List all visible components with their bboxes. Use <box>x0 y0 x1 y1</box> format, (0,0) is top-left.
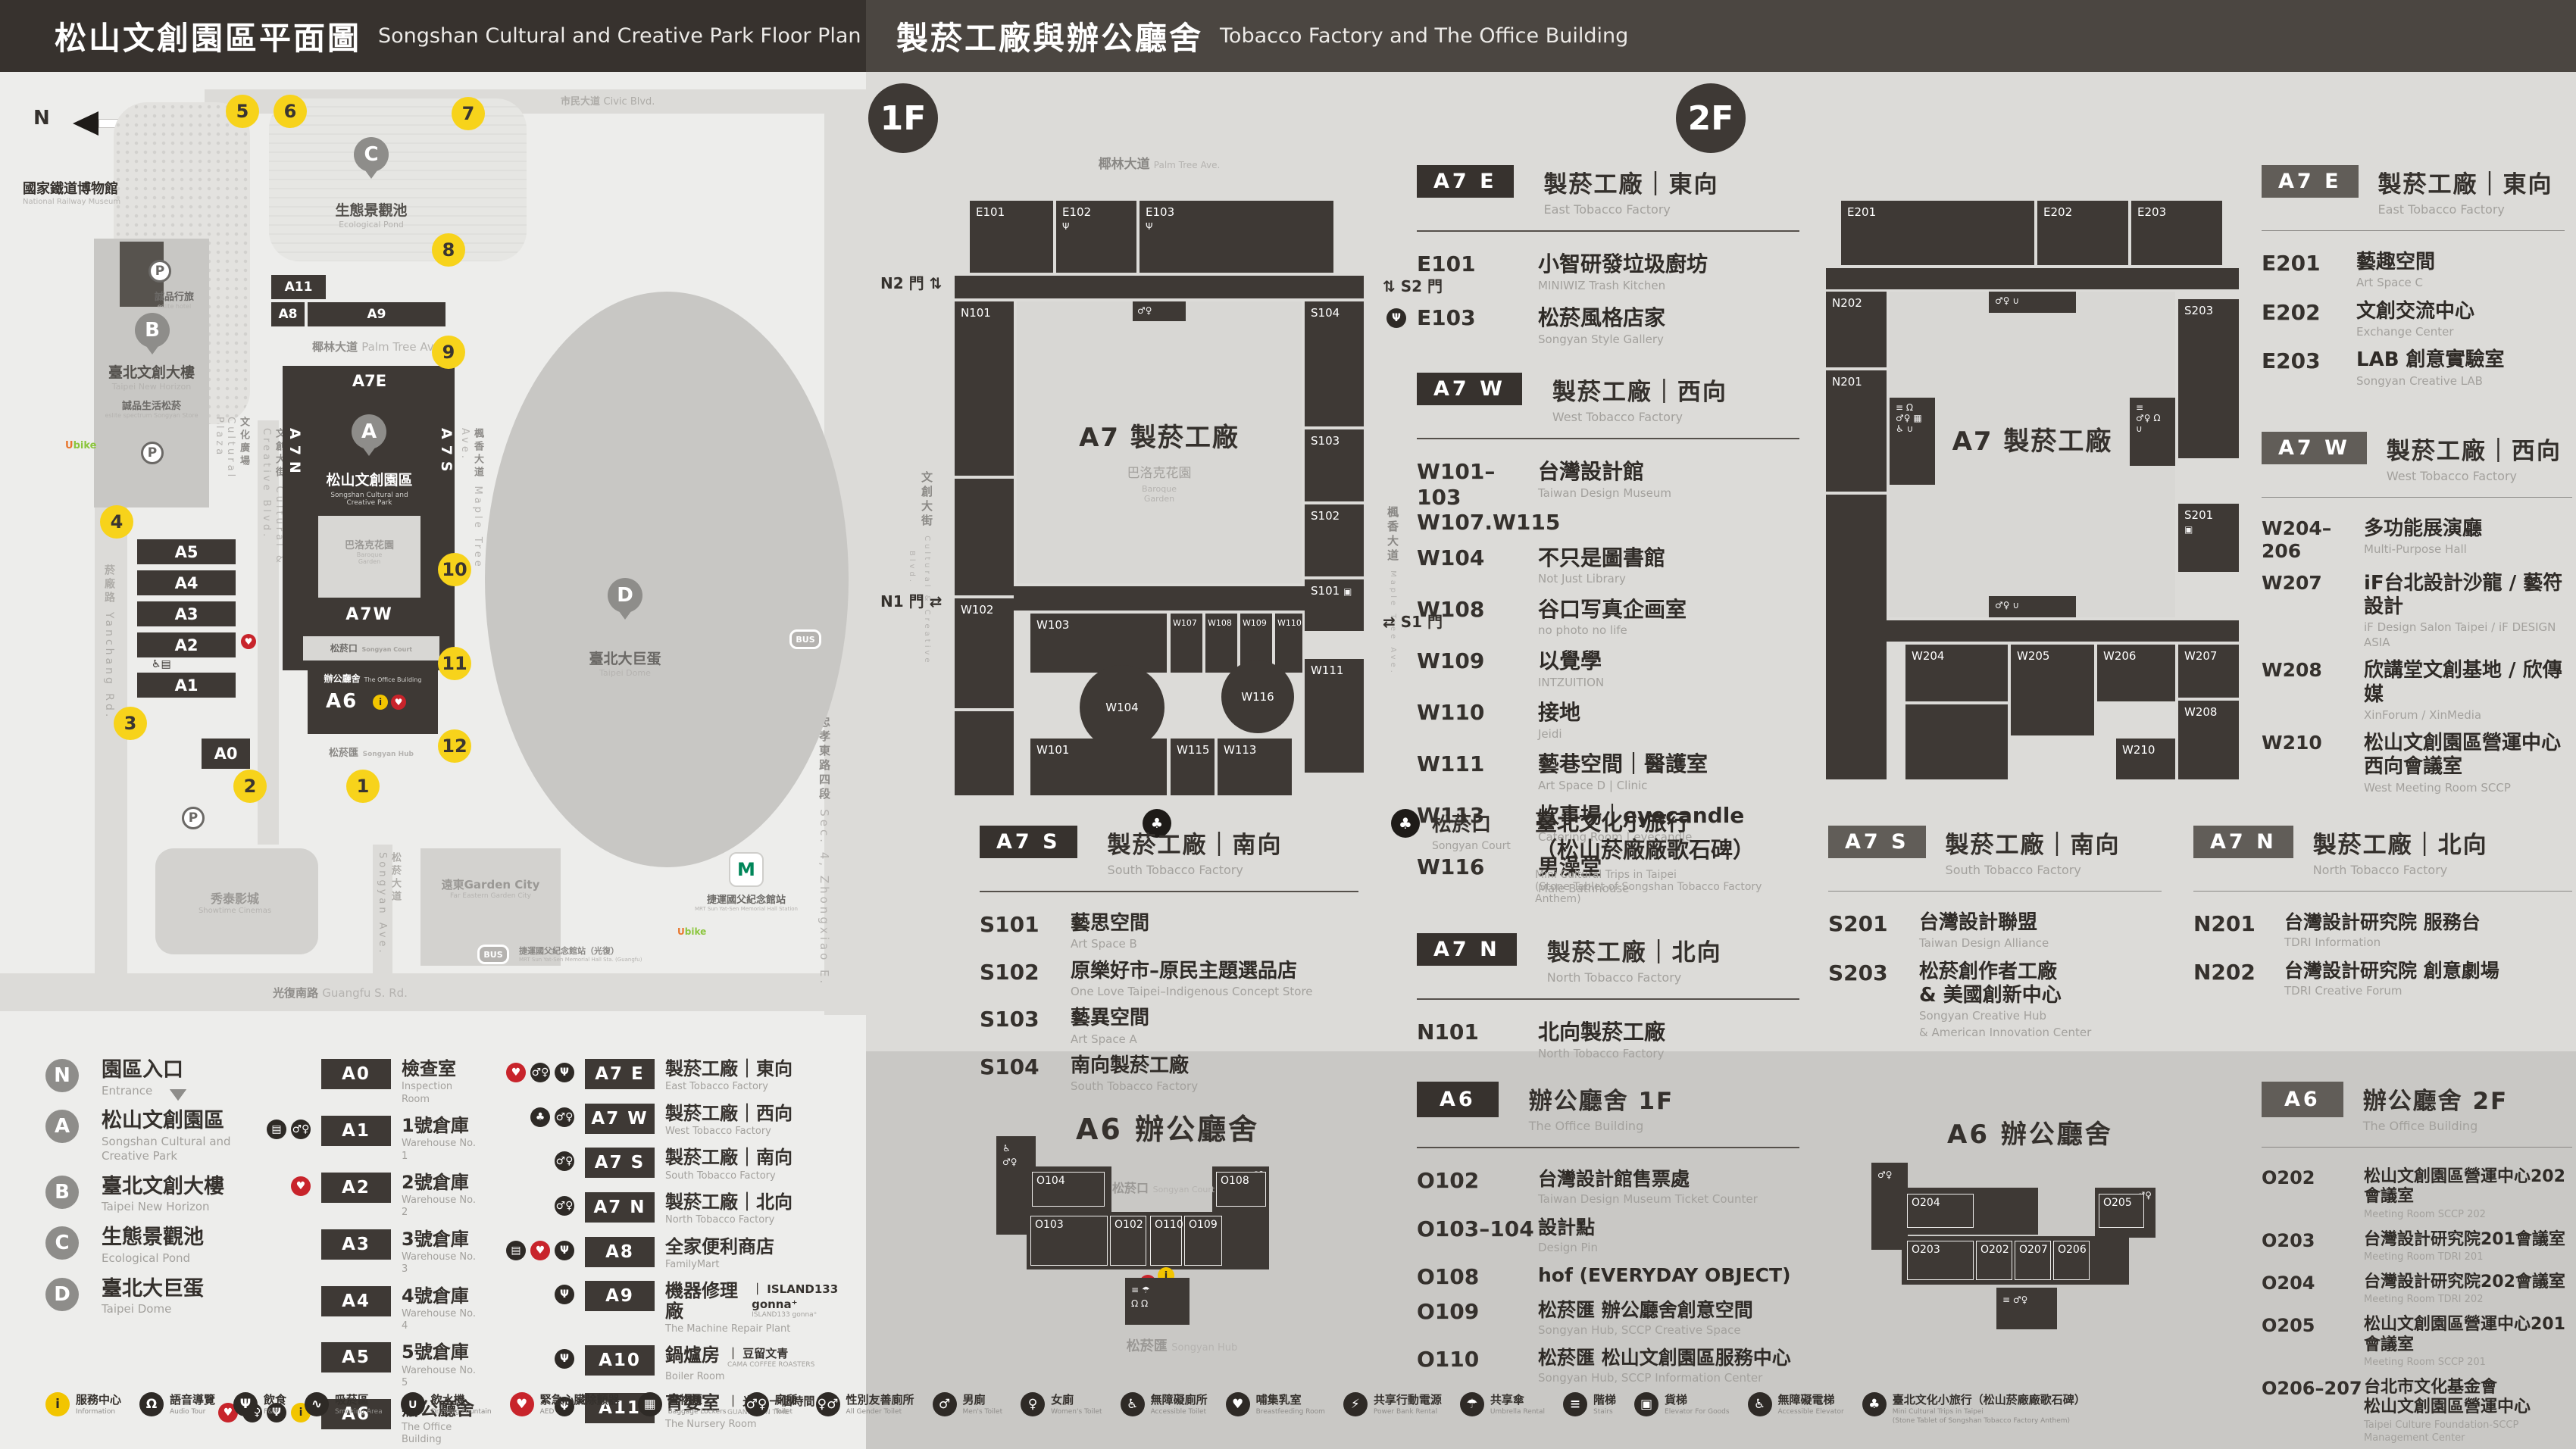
section-a6-1f: A6 辦公廳舍 1FThe Office Building O102 台灣設計館… <box>1417 1082 1799 1395</box>
fountain-icon: ∪ <box>401 1392 425 1416</box>
room-label: O102 <box>1110 1216 1146 1266</box>
map-a7s: A7S <box>438 428 455 478</box>
gate-n2: N2 門 ⇅ <box>880 271 942 293</box>
fnb-icon: Ψ <box>555 1241 574 1260</box>
legend-warehouses: A0 檢查室 Inspection Room ▤♂♀ A1 1號倉庫 Wareh… <box>227 1059 477 1446</box>
divider <box>1417 998 1799 1000</box>
eslite-hotel-label: 誠品行旅 eslite hotel <box>129 289 220 310</box>
directory-entry: O206–207 台北市文化基金會松山文創園區營運中心Taipei Cultur… <box>2262 1378 2572 1445</box>
room-label: W206 <box>2097 645 2175 701</box>
locker-icon: ▦ <box>638 1392 662 1416</box>
facility-item: Ψ 飲食 F&B <box>233 1392 286 1416</box>
toilet-icon: ♂♀ <box>530 1063 550 1082</box>
directory-entry: W108 谷口写真企画室no photo no life <box>1417 597 1799 639</box>
toilet-cluster: ♂♀ ∪ <box>1989 596 2076 617</box>
divider <box>1417 438 1799 439</box>
park-name-label: 松山文創園區 Songshan Cultural and Creative Pa… <box>299 469 439 507</box>
ubike-logo: Ubike <box>677 926 706 937</box>
facility-item: ♿ 無障礙廁所 Accessible Toilet <box>1121 1392 1208 1416</box>
section-a6-2f: A6 辦公廳舍 2FThe Office Building O202 松山文創園… <box>2262 1082 2572 1449</box>
section-chip: A7 N <box>1417 933 1517 966</box>
new-horizon-label: 臺北文創大樓 Taipei New Horizon <box>83 361 220 392</box>
legend-building-row: ♂♀ A7 S 製菸工廠｜南向 South Tobacco Factory <box>491 1148 870 1182</box>
eslite-spectrum-label: 誠品生活松菸 eslite spectrum Songyan Store <box>83 398 220 419</box>
room-label: N202 <box>1826 292 1887 367</box>
songyan-court-map-label: 松菸口 Songyan Court <box>303 640 439 654</box>
legend-building-row: A5 5號倉庫 Warehouse No. 5 <box>227 1342 477 1389</box>
directory-entry: O205 松山文創園區營運中心201會議室Meeting Room SCCP 2… <box>2262 1315 2572 1369</box>
mens-icon: ♂ <box>933 1392 957 1416</box>
stem: ≡ ☂Ω Ω <box>1125 1278 1190 1325</box>
entrance-5: 5 <box>226 95 259 128</box>
palm-ave-label: 椰林大道 Palm Tree Ave. <box>312 339 445 354</box>
court-label: 松菸口 Songyan Court <box>1112 1178 1211 1196</box>
legend-building-row: Ψ A9 機器修理廠 ｜ ISLAND133 gonna⁺ ISLAND133 … <box>491 1281 870 1335</box>
power-icon: ⚡ <box>1343 1392 1368 1416</box>
entrance-2: 2 <box>233 770 267 803</box>
stairs-icon: ≡ <box>1563 1392 1587 1416</box>
legend-building-code: A5 <box>321 1342 391 1372</box>
room-label: S103 <box>1305 429 1364 501</box>
directory-entry: E201 藝趣空間Art Space C <box>2262 251 2565 291</box>
compass-north-arrow <box>61 111 98 136</box>
factory-title-en: Tobacco Factory and The Office Building <box>1220 24 1628 48</box>
wall <box>1826 495 1887 779</box>
room-label: N101 <box>955 301 1014 476</box>
legend-building-code: A2 <box>321 1173 391 1203</box>
entrance-4: 4 <box>100 505 133 539</box>
map-a3: A3 <box>137 601 236 626</box>
facility-item: ♀♂ 性別友善廁所 All Gender Toilet <box>816 1392 914 1416</box>
legend-building-code: A4 <box>321 1286 391 1316</box>
room-label: W108 <box>1205 614 1237 673</box>
facility-item: ♿ 無障礙電梯 Accessible Elevator <box>1748 1392 1844 1416</box>
aed-icon: ♥ <box>291 1176 311 1196</box>
entrance-6: 6 <box>274 95 307 128</box>
a6-plan-1f: A6 辦公廳舍 ♿♂♀ ♂♀ O104 松菸口 Songyan Court O1… <box>985 1102 1379 1360</box>
facility-item: ⚡ 共享行動電源 Power Bank Rental <box>1343 1392 1442 1416</box>
room-label: W101 <box>1030 739 1167 795</box>
directory-entry: S104 南向製菸工廠South Tobacco Factory <box>980 1054 1358 1095</box>
map-a8: A8 <box>271 302 305 326</box>
ecological-pond <box>269 98 527 261</box>
factory-header: 製菸工廠與辦公廳舍 Tobacco Factory and The Office… <box>866 0 2576 72</box>
facility-item: i 服務中心 Information <box>45 1392 121 1416</box>
floor2-badge: 2F <box>1676 83 1746 153</box>
facility-item: ▣ 貨梯 Elevator For Goods <box>1634 1392 1729 1416</box>
room-label: W104 <box>1080 665 1165 750</box>
room-label: O108 <box>1216 1172 1266 1207</box>
dome-label: 臺北大巨蛋 Taipei Dome <box>557 648 693 678</box>
fnb-icon: Ψ <box>1386 308 1406 328</box>
directory-entry: S101 藝思空間Art Space B <box>980 912 1358 952</box>
womens-icon: ♀ <box>1021 1392 1045 1416</box>
directory-entry: O109 松菸匯 辦公廳舍創意空間Songyan Hub, SCCP Creat… <box>1417 1299 1799 1338</box>
aed-icon: ♥ <box>506 1063 526 1082</box>
legend-building-row: ▤♥Ψ A8 全家便利商店 FamilyMart <box>491 1237 870 1272</box>
directory-entry: O108 hof (EVERYDAY OBJECT) <box>1417 1264 1799 1290</box>
compass-label: N <box>33 107 50 130</box>
legend-building-code: A0 <box>321 1059 391 1089</box>
legend-building-code: A7 E <box>585 1059 655 1089</box>
room-label: W205 <box>2011 645 2094 735</box>
stem: ≡ ♂♀ <box>1996 1288 2057 1329</box>
room-label: W208 <box>2178 701 2239 779</box>
songyan-hub-map-label: 松菸匯 Songyan Hub <box>303 745 439 759</box>
legend-building-code: A3 <box>321 1229 391 1260</box>
room-label: W111 <box>1305 659 1364 773</box>
section-chip: A7 S <box>980 826 1077 858</box>
legend-building-code: A7 N <box>585 1192 655 1223</box>
section-a7n-2f: A7 N 製菸工廠｜北向North Tobacco Factory N201 台… <box>2193 826 2572 1007</box>
trip-icon: ♣ <box>1862 1392 1887 1416</box>
room-label: O104 <box>1032 1172 1105 1207</box>
legend-building-code: A7 W <box>585 1104 655 1134</box>
directory-entry: W104 不只是圖書館Not Just Library <box>1417 545 1799 587</box>
directory-entry: O203 台灣設計研究院201會議室Meeting Room TDRI 201 <box>2262 1230 2572 1264</box>
directory-entry: W204–206 多功能展演廳Multi-Purpose Hall <box>2262 517 2572 563</box>
room-label: O206 <box>2053 1241 2090 1280</box>
room-label: S104 <box>1305 301 1364 426</box>
trip-icon: ♣ <box>530 1107 550 1127</box>
map-a0: A0 <box>202 739 250 769</box>
room-label: E102Ψ <box>1056 201 1136 273</box>
allgender-icon: ♀♂ <box>816 1392 840 1416</box>
aed-icon: ♥ <box>391 695 406 710</box>
toilet-icon: ♂♀ <box>745 1392 769 1416</box>
goods-elevator-icon: ▣ <box>1634 1392 1658 1416</box>
legend-building-code: A10 <box>585 1345 655 1376</box>
directory-entry: Ψ E103 松菸風格店家Songyan Style Gallery <box>1417 305 1799 347</box>
gate-n1: N1 門 ⇄ <box>880 589 942 611</box>
floor1-plan: 椰林大道 Palm Tree Ave. 文創大街 Cultural & Crea… <box>939 174 1379 841</box>
facility-item: ♂♀ 廁所 Toilet <box>745 1392 798 1416</box>
toilet-icon: ♂♀ <box>555 1107 574 1127</box>
directory-entry: O202 松山文創園區營運中心202會議室Meeting Room SCCP 2… <box>2262 1167 2572 1222</box>
legend-building-code: A7 S <box>585 1148 655 1178</box>
room-label: S102 <box>1305 504 1364 576</box>
bus-stop-icon: BUS <box>477 945 509 964</box>
directory-entry: W110 接地Jeidi <box>1417 700 1799 742</box>
room-label: O205 <box>2099 1194 2144 1228</box>
room-label: E202 <box>2037 201 2128 265</box>
directory-entry: S201 台灣設計聯盟Taiwan Design Alliance <box>1828 911 2162 951</box>
legend-building-row: A4 4號倉庫 Warehouse No. 4 <box>227 1286 477 1333</box>
entrance-11: 11 <box>438 647 471 680</box>
aed-icon: ♥ <box>530 1241 550 1260</box>
room-label: W116 <box>1221 660 1294 733</box>
directory-entry: S203 松菸創作者工廠& 美國創新中心Songyan Creative Hub… <box>1828 960 2162 1040</box>
room-label: O103 <box>1030 1216 1108 1266</box>
street-cc-blvd: 文創大街 Cultural & Creative Blvd. <box>905 454 935 682</box>
section-a7s-2f: A7 S 製菸工廠｜南向South Tobacco Factory S201 台… <box>1828 826 2162 1049</box>
room-label: O203 <box>1907 1241 1974 1280</box>
bus-stop-label: 捷運國父紀念館站（光復） MRT Sun Yat-Sen Memorial Ha… <box>519 945 642 963</box>
a7-factory-label: A7 製菸工廠 <box>1017 417 1302 454</box>
wall <box>955 479 1014 595</box>
umbrella-icon: ☂ <box>1460 1392 1484 1416</box>
corridor <box>955 276 1364 298</box>
entrance-8: 8 <box>432 233 465 267</box>
legend-building-code: A1 <box>321 1116 391 1146</box>
fnb-icon: Ψ <box>555 1063 574 1082</box>
directory-entry: W207 iF台北設計沙龍 / 藝符設計iF Design Salon Taip… <box>2262 572 2572 650</box>
tree-pin-icon: ♣ <box>1391 809 1420 838</box>
road-label-civic: 市民大道 Civic Blvd. <box>561 93 655 108</box>
cultural-plaza-label: 文化廣場 Cultural Plaza <box>214 417 251 523</box>
room-label: W210 <box>2116 739 2175 779</box>
room-label: E103Ψ <box>1140 201 1333 273</box>
corridor <box>1014 586 1305 611</box>
road-label-songyan-ave: 松菸大道 Songyan Ave. <box>377 852 402 973</box>
park-map: 市民大道 Civic Blvd. 菸廠路 Yanchang Rd. 光復南路 G… <box>0 72 866 1057</box>
legend-factory: ♥♂♀Ψ A7 E 製菸工廠｜東向 East Tobacco Factory ♣… <box>491 1059 870 1432</box>
entrance-7: 7 <box>452 97 485 130</box>
wall <box>1905 704 2008 779</box>
directory-entry: E202 文創交流中心Exchange Center <box>2262 300 2565 340</box>
room-label: S101 ▣ <box>1305 579 1364 631</box>
map-a2: A2 <box>137 632 236 657</box>
directory-entry: W208 欣講堂文創基地 / 欣傳媒XinForum / XinMedia <box>2262 659 2572 723</box>
directory-entry: O103–104 設計點Design Pin <box>1417 1216 1799 1256</box>
parking-icon: P <box>141 442 164 464</box>
accessible-elevator-icon: ♿ <box>1748 1392 1772 1416</box>
fnb-icon: Ψ <box>555 1285 574 1304</box>
toilet-cluster: ♂♀ <box>1133 301 1186 321</box>
map-a4: A4 <box>137 570 236 595</box>
map-a7w: A7W <box>318 605 420 624</box>
legend-building-row: A0 檢查室 Inspection Room <box>227 1059 477 1106</box>
map-a6: A6 <box>326 690 358 713</box>
room-label: W207 <box>2178 645 2239 698</box>
divider <box>980 891 1358 892</box>
legend-pin-icon: C <box>45 1226 79 1260</box>
legend-building-row: A3 3號倉庫 Warehouse No. 3 <box>227 1229 477 1276</box>
entrance-3: 3 <box>114 707 147 740</box>
directory-entry: O110 松菸匯 松山文創園區服務中心Songyan Hub, SCCP Inf… <box>1417 1347 1799 1386</box>
section-a7n-1f: A7 N 製菸工廠｜北向North Tobacco Factory N101 北… <box>1417 933 1799 1073</box>
room-label: W113 <box>1218 739 1292 795</box>
divider <box>2262 497 2572 498</box>
pin-b: B <box>135 313 170 348</box>
floor2-plan: E201 E202 E203 N202 N201 S203 S201▣ ♂♀ ∪… <box>1815 178 2239 807</box>
facility-item: ♣ 臺北文化小旅行（松山菸廠廠歌石碑） Mini Cultural Trips … <box>1862 1392 2086 1425</box>
parking-icon: P <box>148 260 171 283</box>
divider <box>1417 1147 1799 1148</box>
room-label: E101 <box>970 201 1053 273</box>
directory-entry: E203 LAB 創意實驗室Songyan Creative LAB <box>2262 348 2565 389</box>
taipei-dome <box>485 292 849 867</box>
room-label: W103 <box>1030 614 1167 673</box>
map-a7e: A7E <box>333 372 405 390</box>
park-header: 松山文創園區平面圖 Songshan Cultural and Creative… <box>0 0 866 72</box>
directory-entry: W109 以覺學INTZUITION <box>1417 648 1799 690</box>
nursing-icon: ♥ <box>1226 1392 1250 1416</box>
section-a7e-2f: A7 E 製菸工廠｜東向East Tobacco Factory E201 藝趣… <box>2262 165 2565 398</box>
section-chip: A7 E <box>1417 165 1514 198</box>
entrance-10: 10 <box>438 553 471 586</box>
room-label: W102 <box>955 598 1014 708</box>
section-chip: A6 <box>1417 1082 1499 1117</box>
legend-pin-icon: D <box>45 1278 79 1311</box>
corridor <box>1826 268 2239 289</box>
entrance-1: 1 <box>346 770 380 803</box>
section-chip: A7 E <box>2262 165 2359 198</box>
section-chip: A7 W <box>1417 373 1522 405</box>
directory-entry: W101–103W107.W115 台灣設計館Taiwan Design Mus… <box>1417 459 1799 536</box>
legend-pin-icon: B <box>45 1176 79 1209</box>
legend-building-row: ♣♂♀ A7 W 製菸工廠｜西向 West Tobacco Factory <box>491 1104 870 1138</box>
directory-entry: N202 台灣設計研究院 創意劇場TDRI Creative Forum <box>2193 960 2572 999</box>
mrt-station-label: 捷運國父紀念館站 MRT Sun Yat-Sen Memorial Hall S… <box>674 892 818 912</box>
toilet-icon: ♂♀ <box>555 1151 574 1171</box>
road-label-guangfu: 光復南路 Guangfu S. Rd. <box>273 985 408 1001</box>
pin-a: A <box>352 414 386 449</box>
aed-icon: ♥ <box>241 634 256 649</box>
facility-item: Ω 語音導覽 Audio Tour <box>139 1392 215 1416</box>
section-songyan-court: ♣ 松菸口 Songyan Court 臺北文化小旅行 （松山菸廠廠歌石碑） M… <box>1391 809 1800 905</box>
legend-building-code: A9 <box>585 1281 655 1311</box>
entrance-12: 12 <box>438 729 471 763</box>
road-guangfu <box>0 973 866 1011</box>
section-chip: A7 S <box>1828 826 1926 858</box>
corridor <box>1887 620 2239 642</box>
directory-entry: W111 藝巷空間｜醫護室Art Space D | Clinic <box>1417 751 1799 793</box>
toilet-cluster: ♂♀ ∪ <box>1989 292 2076 313</box>
legend-building-row: ♥♂♀Ψ A7 E 製菸工廠｜東向 East Tobacco Factory <box>491 1059 870 1094</box>
parking-icon: P <box>182 807 205 829</box>
garden-city-label: 遠東Garden City Far Eastern Garden City <box>424 876 557 900</box>
factory-title-zh: 製菸工廠與辦公廳舍 <box>896 13 1203 59</box>
street-palm-ave: 椰林大道 Palm Tree Ave. <box>1030 153 1288 172</box>
directory-entry: E101 小智研發垃圾廚坊MINIWIZ Trash Kitchen <box>1417 251 1799 293</box>
room-label: W204 <box>1905 645 2008 701</box>
room-label: W115 <box>1171 739 1215 795</box>
baroque-garden-label: 巴洛克花園 BaroqueGarden <box>318 537 420 565</box>
toilet-icon: ♂♀ <box>291 1120 311 1139</box>
directory-entry: N201 台灣設計研究院 服務台TDRI Information <box>2193 911 2572 951</box>
facility-item: ♥ 緊急心臟除顫器 AED <box>510 1392 620 1416</box>
facility-item: ∪ 飲水機 Drinking Fountain <box>401 1392 492 1416</box>
hub-label: 松菸匯 Songyan Hub <box>1091 1335 1273 1355</box>
room-label: O202 <box>1976 1241 2012 1280</box>
road-label-yanchang: 菸廠路 Yanchang Rd. <box>102 564 117 720</box>
metro-logo: M <box>729 852 764 887</box>
room-label: O110 <box>1150 1216 1182 1266</box>
audio-icon: Ω <box>139 1392 164 1416</box>
pin-d: D <box>608 578 642 613</box>
legend-building-row: ♥ A2 2號倉庫 Warehouse No. 2 <box>227 1173 477 1219</box>
accessible-elevator-icons: ♿▤ <box>152 658 171 670</box>
floorplan-poster: 松山文創園區平面圖 Songshan Cultural and Creative… <box>0 0 2576 1449</box>
directory-entry: S103 藝異空間Art Space A <box>980 1007 1358 1047</box>
facility-item: ♀ 女廁 Women's Toilet <box>1021 1392 1102 1416</box>
pond-label: 生態景觀池 Ecological Pond <box>303 199 439 230</box>
a7-factory-label: A7 製菸工廠 <box>1890 420 2175 457</box>
section-chip: A6 <box>2262 1082 2343 1117</box>
section-a7w-2f: A7 W 製菸工廠｜西向West Tobacco Factory W204–20… <box>2262 432 2572 804</box>
info-icon: i <box>373 695 388 710</box>
section-chip: A7 N <box>2193 826 2293 858</box>
elevator-icon: ▤ <box>267 1120 286 1139</box>
legend-pin-icon: A <box>45 1110 79 1143</box>
section-a7e-1f: A7 E 製菸工廠｜東向East Tobacco Factory E101 小智… <box>1417 165 1799 359</box>
map-a1: A1 <box>137 673 236 698</box>
directory-entry: O204 台灣設計研究院202會議室Meeting Room TDRI 202 <box>2262 1273 2572 1307</box>
room-label: N201 <box>1826 370 1887 492</box>
baroque-garden-plan-label: 巴洛克花園 Baroque Garden <box>1017 462 1302 504</box>
section-a7s-1f: A7 S 製菸工廠｜南向South Tobacco Factory S101 藝… <box>980 826 1358 1102</box>
bus-stop-icon: BUS <box>789 629 821 649</box>
room-label: O207 <box>2015 1241 2051 1280</box>
directory-entry: O102 台灣設計館售票處Taiwan Design Museum Ticket… <box>1417 1168 1799 1207</box>
pin-c: C <box>354 137 389 172</box>
directory-entry: N101 北向製菸工廠North Tobacco Factory <box>1417 1020 1799 1061</box>
legend-building-code: A8 <box>585 1237 655 1267</box>
room-label: W107 <box>1171 614 1202 673</box>
info-icon: i <box>45 1392 70 1416</box>
divider <box>2193 891 2572 892</box>
room-label: E201 <box>1841 201 2034 265</box>
street-maple-ave: 楓香大道 Maple Tree Ave. <box>1385 477 1401 704</box>
section-chip: A7 W <box>2262 432 2367 464</box>
room-label: E203 <box>2131 201 2222 265</box>
divider <box>1828 891 2162 892</box>
divider <box>2262 1147 2572 1148</box>
fnb-icon: Ψ <box>233 1392 258 1416</box>
divider <box>2262 230 2565 231</box>
legend-pin-icon: N <box>45 1059 79 1092</box>
room-label: S201▣ <box>2178 504 2239 572</box>
ubike-logo: Ubike <box>65 440 96 451</box>
accessible-icon: ♿ <box>1121 1392 1145 1416</box>
smoking-icon: ∿ <box>305 1392 329 1416</box>
map-a5: A5 <box>137 539 236 564</box>
room-label: O109 <box>1184 1216 1222 1266</box>
directory-entry: S102 原樂好市–原民主題選品店One Love Taipei–Indigen… <box>980 960 1358 1000</box>
elevator-icon: ▤ <box>506 1241 526 1260</box>
facility-item: ≡ 階梯 Stairs <box>1563 1392 1616 1416</box>
railway-museum-label: 國家鐵道博物館 National Railway Museum <box>23 178 205 206</box>
facility-item: ☂ 共享傘 Umbrella Rental <box>1460 1392 1545 1416</box>
room-label: W110 <box>1275 614 1302 673</box>
a6-plan-2f: A6 辦公廳舍 ♂♀ O204 O203 O202 O207 O206 ♂♀ O… <box>1860 1091 2193 1341</box>
facility-item: ∿ 吸菸區 Smoking Area <box>305 1392 383 1416</box>
toilet-icon: ♂♀ <box>555 1196 574 1216</box>
facility-item: ♂ 男廁 Men's Toilet <box>933 1392 1003 1416</box>
park-title-en: Songshan Cultural and Creative Park Floo… <box>378 24 861 48</box>
showtime-label: 秀泰影城 Showtime Cinemas <box>163 888 307 915</box>
legend-building-row: ♂♀ A7 N 製菸工廠｜北向 North Tobacco Factory <box>491 1192 870 1227</box>
directory-entry: W210 松山文創園區營運中心西向會議室West Meeting Room SC… <box>2262 732 2572 795</box>
park-title-zh: 松山文創園區平面圖 <box>55 13 361 59</box>
legend-building-row: ▤♂♀ A1 1號倉庫 Warehouse No. 1 <box>227 1116 477 1163</box>
office-building-map-label: 辦公廳舍 The Office Building <box>308 670 438 685</box>
room-label: S203 <box>2178 299 2239 458</box>
aed-icon: ♥ <box>510 1392 534 1416</box>
room-label: O204 <box>1907 1194 1974 1228</box>
map-a11: A11 <box>271 275 326 299</box>
facility-legend-strip: i 服務中心 Information Ω 語音導覽 Audio Tour Ψ <box>45 1392 2531 1425</box>
facility-item: ▦ 置物櫃 Baggage Lockers <box>638 1392 727 1416</box>
fnb-icon: Ψ <box>555 1349 574 1369</box>
entrance-9: 9 <box>432 336 465 369</box>
floor1-badge: 1F <box>868 83 938 153</box>
map-a9: A9 <box>308 302 445 326</box>
wall <box>955 711 1014 795</box>
facility-item: ♥ 哺集乳室 Breastfeeding Room <box>1226 1392 1325 1416</box>
divider <box>1417 230 1799 232</box>
